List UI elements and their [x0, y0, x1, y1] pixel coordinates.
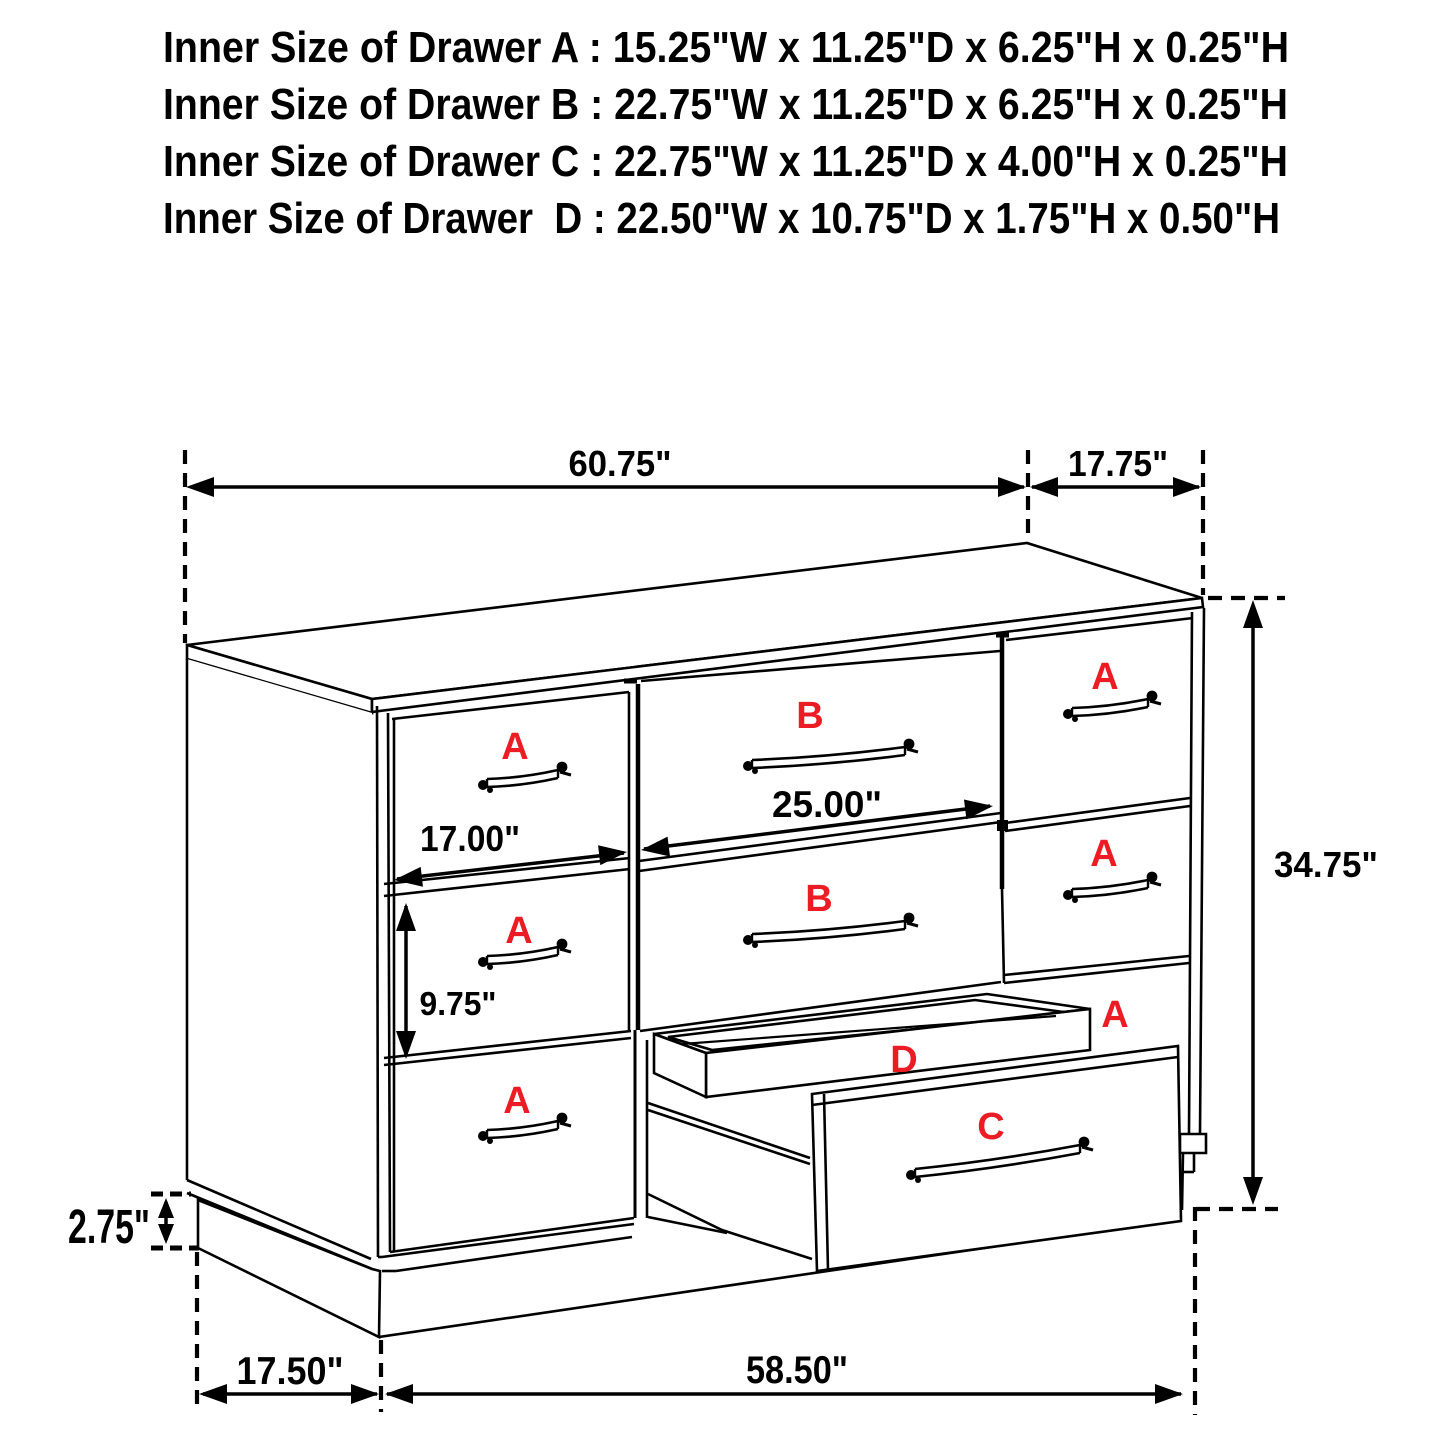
svg-text:D: D: [890, 1039, 917, 1081]
svg-text:17.00": 17.00": [420, 818, 520, 859]
svg-text:Inner Size of Drawer A : 15.25: Inner Size of Drawer A : 15.25"W x 11.25…: [163, 23, 1289, 72]
svg-text:A: A: [1090, 833, 1117, 875]
svg-text:2.75": 2.75": [68, 1201, 150, 1254]
svg-text:58.50": 58.50": [746, 1349, 848, 1392]
svg-text:A: A: [505, 910, 532, 952]
svg-text:Inner Size of Drawer C : 22.75: Inner Size of Drawer C : 22.75"W x 11.25…: [163, 137, 1288, 186]
svg-text:17.50": 17.50": [237, 1350, 344, 1393]
svg-text:A: A: [1091, 656, 1118, 698]
svg-text:A: A: [501, 726, 528, 768]
svg-text:B: B: [796, 695, 823, 737]
svg-text:B: B: [805, 878, 832, 920]
svg-text:A: A: [1101, 994, 1128, 1036]
svg-text:25.00": 25.00": [772, 784, 882, 825]
svg-text:A: A: [503, 1080, 530, 1122]
svg-text:34.75": 34.75": [1274, 844, 1378, 885]
svg-text:Inner Size of Drawer B : 22.75: Inner Size of Drawer B : 22.75"W x 11.25…: [163, 80, 1288, 129]
svg-text:17.75": 17.75": [1068, 443, 1168, 484]
svg-text:Inner Size of Drawer D : 22.5: Inner Size of Drawer D : 22.50"W x 10.75…: [163, 194, 1280, 243]
svg-text:60.75": 60.75": [569, 443, 672, 484]
svg-text:9.75": 9.75": [420, 985, 497, 1022]
svg-text:C: C: [977, 1106, 1004, 1148]
